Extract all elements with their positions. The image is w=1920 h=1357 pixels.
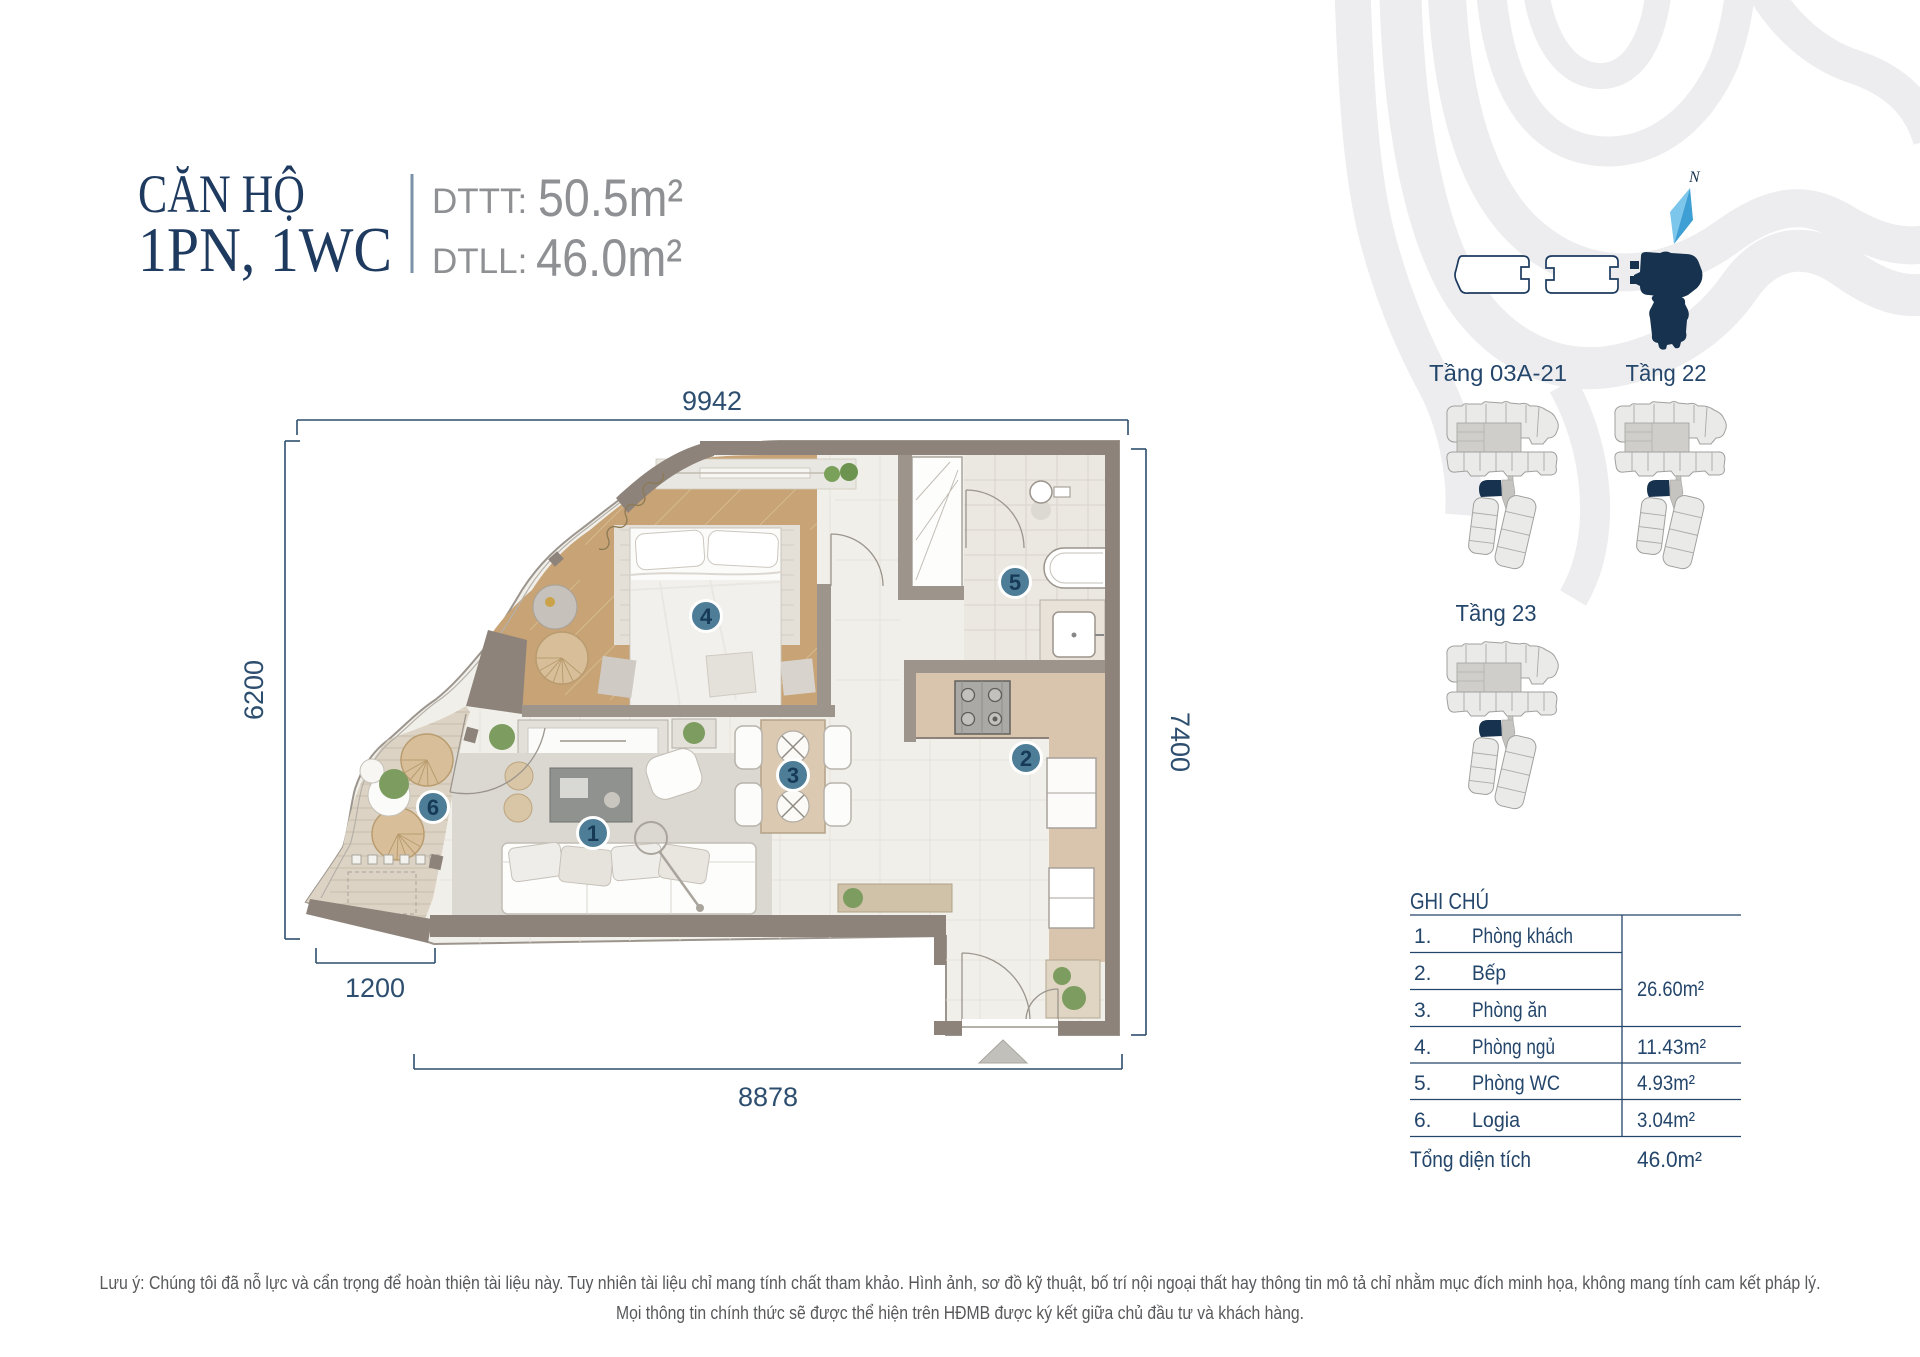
svg-text:5.: 5. bbox=[1414, 1072, 1432, 1095]
svg-text:2: 2 bbox=[1020, 746, 1032, 771]
svg-text:Mọi thông tin chính thức sẽ đư: Mọi thông tin chính thức sẽ được thể hiệ… bbox=[616, 1303, 1304, 1323]
svg-text:26.60m²: 26.60m² bbox=[1637, 978, 1704, 1001]
svg-text:Tổng diện tích: Tổng diện tích bbox=[1410, 1147, 1531, 1172]
svg-text:5: 5 bbox=[1009, 570, 1021, 595]
svg-text:Tầng 22: Tầng 22 bbox=[1626, 360, 1707, 386]
svg-text:46.0m²: 46.0m² bbox=[536, 229, 682, 288]
svg-text:11.43m²: 11.43m² bbox=[1637, 1036, 1706, 1059]
svg-text:3: 3 bbox=[787, 763, 799, 788]
svg-text:Tầng 23: Tầng 23 bbox=[1456, 600, 1537, 626]
svg-text:Logia: Logia bbox=[1472, 1109, 1520, 1132]
svg-text:1.: 1. bbox=[1414, 925, 1432, 948]
svg-text:Bếp: Bếp bbox=[1472, 962, 1506, 985]
svg-text:2.: 2. bbox=[1414, 962, 1432, 985]
svg-text:6: 6 bbox=[427, 795, 439, 820]
svg-text:1: 1 bbox=[587, 821, 599, 846]
svg-text:4.93m²: 4.93m² bbox=[1637, 1072, 1695, 1095]
svg-text:Phòng ngủ: Phòng ngủ bbox=[1472, 1036, 1555, 1059]
svg-text:50.5m²: 50.5m² bbox=[538, 169, 683, 228]
svg-text:Phòng WC: Phòng WC bbox=[1472, 1072, 1560, 1095]
svg-text:Lưu ý: Chúng tôi đã nỗ lực và: Lưu ý: Chúng tôi đã nỗ lực và cẩn trọng … bbox=[100, 1272, 1821, 1293]
svg-text:Phòng ăn: Phòng ăn bbox=[1472, 999, 1547, 1022]
svg-text:N: N bbox=[1688, 169, 1701, 186]
svg-text:3.: 3. bbox=[1414, 999, 1432, 1022]
svg-text:3.04m²: 3.04m² bbox=[1637, 1109, 1695, 1132]
svg-text:6200: 6200 bbox=[239, 660, 269, 720]
svg-text:1200: 1200 bbox=[345, 973, 405, 1003]
svg-text:Tầng 03A-21: Tầng 03A-21 bbox=[1429, 360, 1567, 386]
svg-text:7400: 7400 bbox=[1165, 712, 1195, 772]
svg-text:9942: 9942 bbox=[682, 386, 742, 416]
svg-text:6.: 6. bbox=[1414, 1109, 1432, 1132]
svg-text:Phòng khách: Phòng khách bbox=[1472, 925, 1573, 948]
svg-text:GHI CHÚ: GHI CHÚ bbox=[1410, 888, 1489, 914]
svg-text:4: 4 bbox=[700, 604, 713, 629]
svg-text:46.0m²: 46.0m² bbox=[1637, 1147, 1702, 1172]
svg-text:1PN, 1WC: 1PN, 1WC bbox=[138, 215, 392, 285]
svg-text:4.: 4. bbox=[1414, 1036, 1432, 1059]
svg-text:DTTT:: DTTT: bbox=[432, 182, 527, 221]
svg-text:DTLL:: DTLL: bbox=[432, 242, 527, 281]
svg-text:8878: 8878 bbox=[738, 1082, 798, 1112]
